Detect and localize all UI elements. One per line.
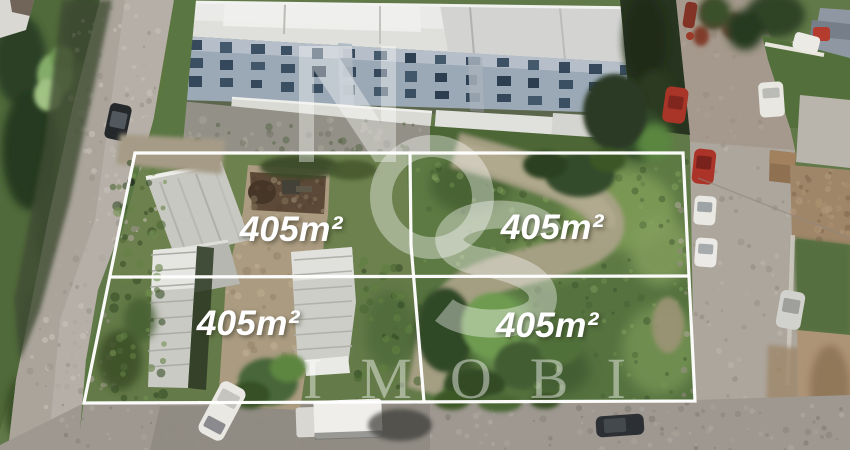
svg-text:405m²: 405m²: [500, 207, 605, 247]
svg-text:405m²: 405m²: [239, 209, 344, 249]
svg-text:405m²: 405m²: [196, 303, 301, 343]
svg-text:405m²: 405m²: [495, 305, 600, 345]
